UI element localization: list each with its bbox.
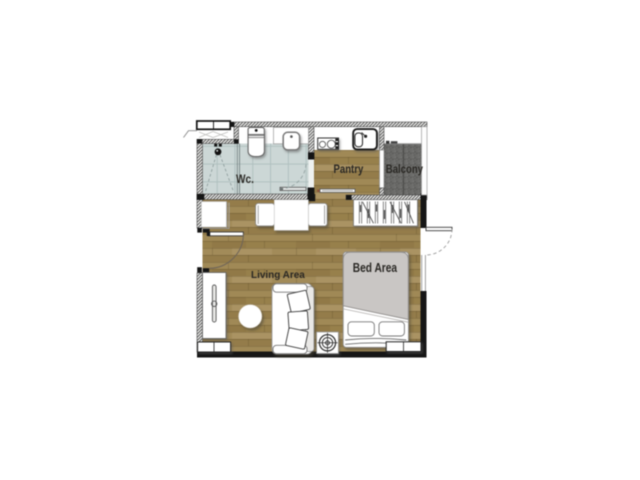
svg-text:Wc.: Wc. [236, 172, 254, 186]
svg-text:Pantry: Pantry [334, 163, 364, 176]
svg-text:Living Area: Living Area [251, 270, 305, 281]
svg-text:Balcony: Balcony [386, 162, 423, 176]
svg-text:Bed Area: Bed Area [353, 260, 398, 275]
